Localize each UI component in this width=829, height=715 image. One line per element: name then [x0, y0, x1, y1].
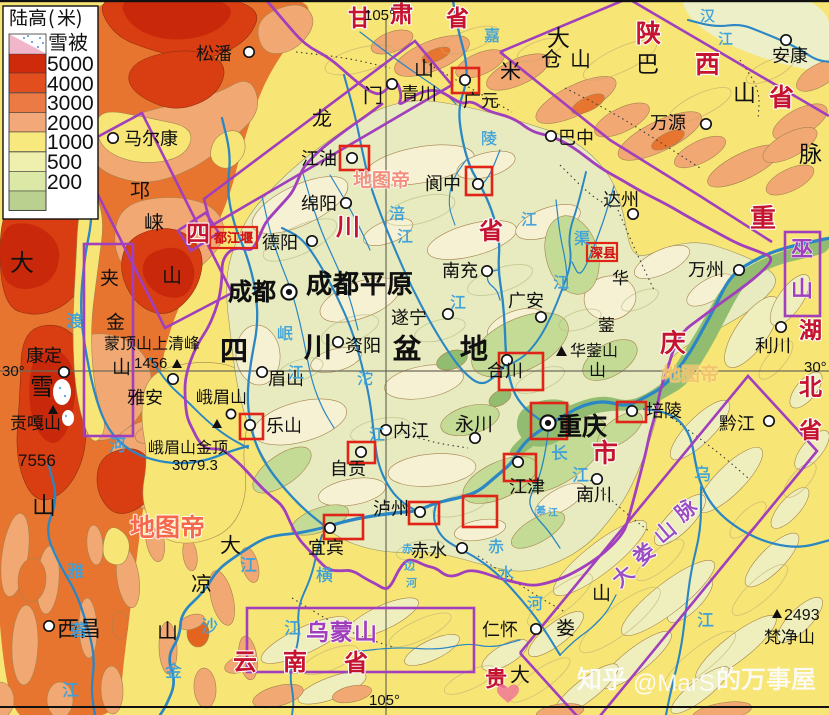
- svg-text:@MarS: @MarS: [633, 670, 715, 697]
- svg-text:200: 200: [47, 171, 82, 194]
- svg-text:1456: 1456: [134, 355, 167, 372]
- svg-text:30°: 30°: [2, 363, 25, 380]
- svg-text:3079.3: 3079.3: [172, 457, 218, 474]
- svg-text:7556: 7556: [18, 451, 56, 470]
- svg-text:105°: 105°: [364, 7, 395, 24]
- svg-text:2493: 2493: [784, 607, 820, 624]
- svg-text:30°: 30°: [804, 359, 827, 376]
